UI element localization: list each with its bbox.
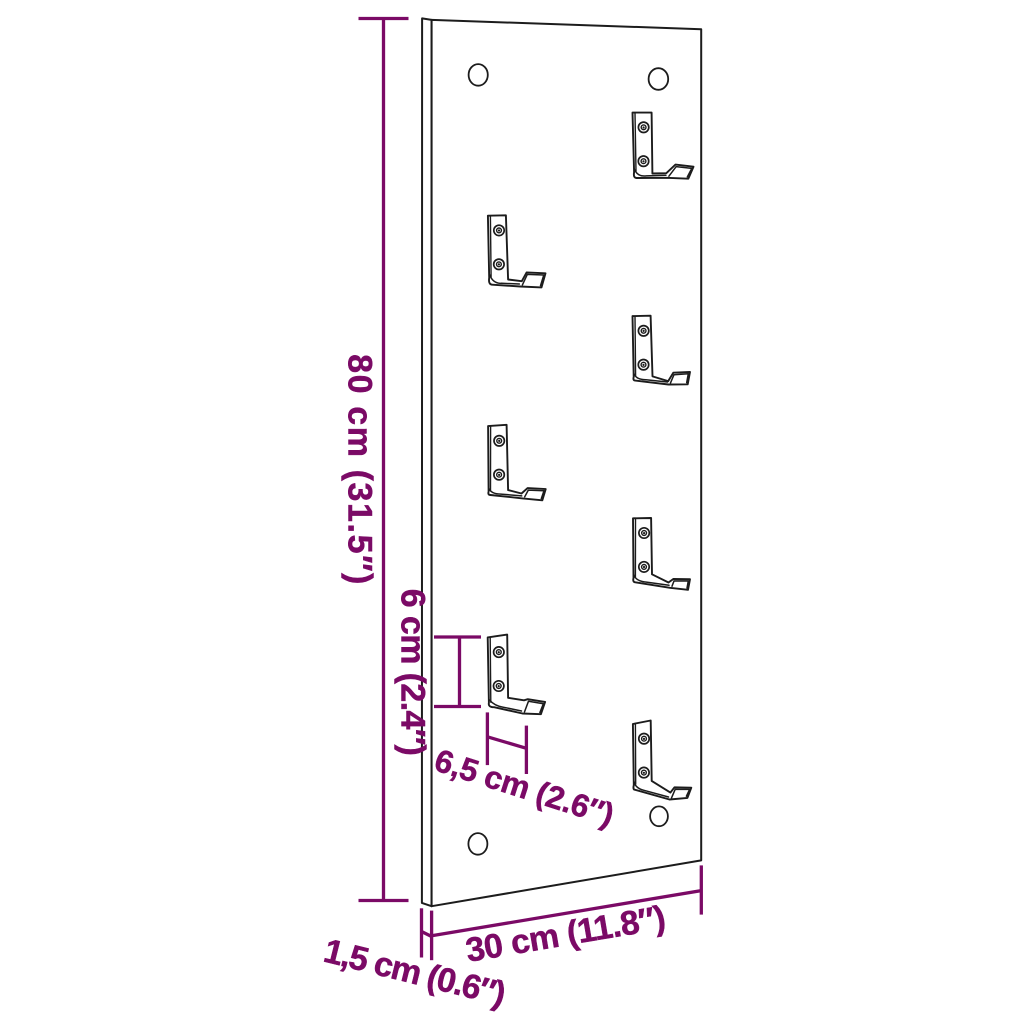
svg-text:6 cm (2.4″): 6 cm (2.4″): [394, 589, 432, 756]
svg-text:80 cm (31.5″): 80 cm (31.5″): [341, 354, 379, 586]
